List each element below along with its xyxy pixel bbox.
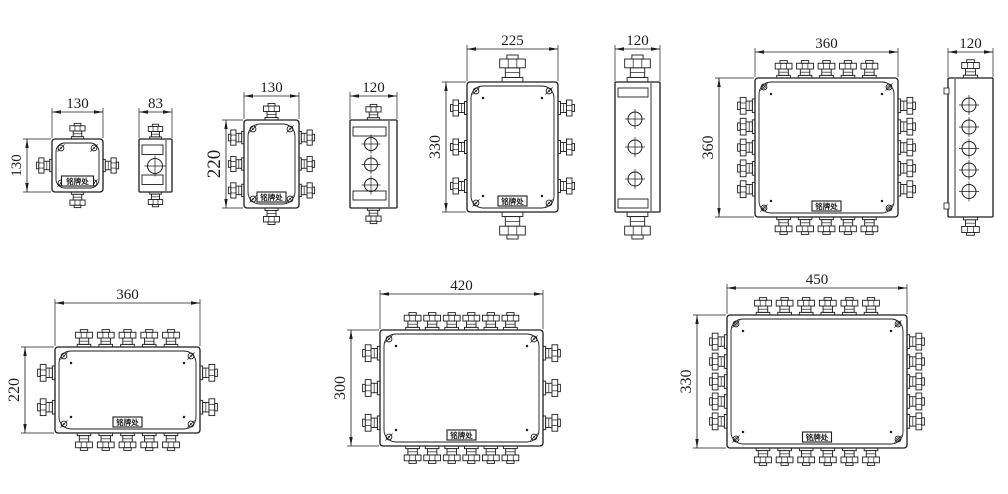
- dimension-label: 130: [260, 80, 283, 96]
- cable-gland-icon: [38, 399, 56, 416]
- cable-gland-icon: [841, 298, 858, 316]
- cable-gland-icon: [363, 345, 381, 362]
- cable-gland-icon: [542, 345, 560, 362]
- cable-gland-icon: [500, 211, 526, 239]
- cable-gland-icon: [557, 178, 575, 194]
- cable-gland-icon: [404, 313, 421, 331]
- dimension-label: 330: [678, 370, 695, 394]
- cable-gland-icon: [897, 181, 915, 198]
- nameplate-label: 铭牌处: [803, 432, 832, 442]
- cable-gland-icon: [710, 373, 728, 390]
- cable-gland-icon: [625, 211, 651, 239]
- box-420x300-front: 铭牌处420300: [332, 278, 560, 463]
- dimension-label: 360: [815, 36, 838, 52]
- cable-gland-icon: [863, 298, 880, 316]
- nameplate-label: 铭牌处: [113, 417, 142, 427]
- cable-gland-icon: [228, 183, 245, 198]
- cable-gland-icon: [443, 445, 460, 463]
- cable-gland-icon: [906, 413, 924, 430]
- cable-gland-icon: [163, 330, 180, 348]
- dimension-label: 330: [427, 135, 444, 159]
- cable-gland-icon: [625, 55, 651, 83]
- box-120-side-large-gland: 120: [615, 33, 660, 239]
- cable-gland-icon: [542, 414, 560, 431]
- cable-gland-icon: [102, 158, 119, 173]
- cable-gland-icon: [542, 380, 560, 397]
- cable-gland-icon: [298, 183, 315, 198]
- cable-gland-icon: [70, 123, 85, 140]
- cable-gland-icon: [962, 216, 980, 235]
- cable-gland-icon: [76, 432, 93, 450]
- cable-gland-icon: [97, 432, 114, 450]
- nameplate-label: 铭牌处: [498, 196, 527, 206]
- cable-gland-icon: [557, 139, 575, 155]
- cable-gland-icon: [819, 298, 836, 316]
- svg-text:铭牌处: 铭牌处: [116, 417, 139, 427]
- cable-gland-icon: [451, 178, 469, 194]
- nameplate-label: 铭牌处: [812, 201, 841, 211]
- dimension-label: 83: [148, 96, 163, 112]
- cable-gland-icon: [818, 216, 835, 234]
- cable-gland-icon: [738, 97, 756, 114]
- dimension-label: 130: [9, 154, 25, 177]
- cable-gland-icon: [298, 156, 315, 171]
- cable-gland-icon: [738, 181, 756, 198]
- cable-gland-icon: [738, 118, 756, 135]
- cable-gland-icon: [366, 104, 381, 121]
- dimension-label: 130: [66, 96, 89, 112]
- cable-gland-icon: [798, 447, 815, 465]
- dimension-220: 220: [6, 347, 54, 433]
- cable-gland-icon: [840, 61, 857, 79]
- cable-gland-icon: [738, 160, 756, 177]
- technical-drawing-svg: 铭牌处13013083铭牌处130220120铭牌处225330120铭牌处36…: [0, 0, 1008, 494]
- cable-gland-icon: [710, 413, 728, 430]
- cable-gland-icon: [710, 353, 728, 370]
- junction-box-drawing-sheet: 铭牌处13013083铭牌处130220120铭牌处225330120铭牌处36…: [0, 0, 1008, 494]
- cable-gland-icon: [840, 216, 857, 234]
- nameplate-label: 铭牌处: [447, 430, 476, 440]
- cable-gland-icon: [141, 432, 158, 450]
- cable-gland-icon: [264, 207, 280, 225]
- cable-gland-icon: [897, 118, 915, 135]
- cable-gland-icon: [710, 333, 728, 350]
- cable-gland-icon: [482, 313, 499, 331]
- dimension-label: 420: [450, 278, 473, 294]
- cable-gland-icon: [424, 313, 441, 331]
- cable-gland-icon: [463, 313, 480, 331]
- box-120-side-3bolt: 120: [350, 80, 397, 224]
- cable-gland-icon: [897, 160, 915, 177]
- cable-gland-icon: [463, 445, 480, 463]
- svg-text:铭牌处: 铭牌处: [815, 201, 838, 211]
- cable-gland-icon: [141, 330, 158, 348]
- box-360x360-front: 铭牌处360360: [700, 36, 915, 234]
- cable-gland-icon: [861, 61, 878, 79]
- cable-gland-icon: [863, 447, 880, 465]
- cable-gland-icon: [228, 130, 245, 145]
- cable-gland-icon: [775, 216, 792, 234]
- box-450x330-front: 铭牌处450330: [678, 272, 924, 465]
- cable-gland-icon: [818, 61, 835, 79]
- cable-gland-icon: [366, 207, 381, 224]
- box-225x330-front: 铭牌处225330: [427, 33, 575, 239]
- cable-gland-icon: [119, 432, 136, 450]
- cable-gland-icon: [148, 124, 162, 140]
- box-360x220-front: 铭牌处360220: [6, 287, 217, 450]
- cable-gland-icon: [738, 139, 756, 156]
- cable-gland-icon: [755, 447, 772, 465]
- cable-gland-icon: [500, 55, 526, 83]
- cable-gland-icon: [228, 156, 245, 171]
- cable-gland-icon: [451, 139, 469, 155]
- cable-gland-icon: [163, 432, 180, 450]
- cable-gland-icon: [298, 130, 315, 145]
- cable-gland-icon: [404, 445, 421, 463]
- svg-text:铭牌处: 铭牌处: [66, 176, 89, 186]
- svg-text:铭牌处: 铭牌处: [501, 196, 524, 206]
- cable-gland-icon: [424, 445, 441, 463]
- cable-gland-icon: [119, 330, 136, 348]
- cable-gland-icon: [897, 139, 915, 156]
- cable-gland-icon: [906, 373, 924, 390]
- cable-gland-icon: [502, 313, 519, 331]
- svg-text:铭牌处: 铭牌处: [450, 430, 473, 440]
- cable-gland-icon: [451, 100, 469, 116]
- dimension-label: 225: [501, 33, 524, 49]
- nameplate-label: 铭牌处: [257, 192, 286, 202]
- dimension-label: 120: [959, 36, 982, 52]
- cable-gland-icon: [906, 333, 924, 350]
- dimension-label: 120: [362, 80, 385, 96]
- dimension-label: 300: [332, 376, 349, 400]
- cable-gland-icon: [557, 100, 575, 116]
- box-130x220-front: 铭牌处130220: [204, 80, 315, 225]
- cable-gland-icon: [363, 380, 381, 397]
- cable-gland-icon: [906, 353, 924, 370]
- cable-gland-icon: [797, 61, 814, 79]
- cable-gland-icon: [443, 313, 460, 331]
- cable-gland-icon: [755, 298, 772, 316]
- cable-gland-icon: [199, 399, 217, 416]
- cable-gland-icon: [798, 298, 815, 316]
- cable-gland-icon: [148, 191, 162, 207]
- dimension-label: 450: [806, 272, 829, 288]
- cable-gland-icon: [776, 447, 793, 465]
- dimension-label: 360: [700, 136, 717, 160]
- cable-gland-icon: [199, 364, 217, 381]
- cable-gland-icon: [363, 414, 381, 431]
- cable-gland-icon: [962, 60, 980, 79]
- cable-gland-icon: [906, 393, 924, 410]
- cable-gland-icon: [861, 216, 878, 234]
- box-83-side: 83: [139, 96, 172, 207]
- cable-gland-icon: [710, 393, 728, 410]
- box-120-side-5bolt: 120: [944, 36, 993, 235]
- cable-gland-icon: [897, 97, 915, 114]
- cable-gland-icon: [775, 61, 792, 79]
- dimension-label: 120: [626, 33, 649, 49]
- dimension-label: 220: [6, 378, 23, 402]
- svg-text:铭牌处: 铭牌处: [260, 192, 283, 202]
- cable-gland-icon: [502, 445, 519, 463]
- cable-gland-icon: [482, 445, 499, 463]
- box-130x130-front: 铭牌处130130: [9, 96, 119, 208]
- cable-gland-icon: [97, 330, 114, 348]
- cable-gland-icon: [36, 158, 53, 173]
- cable-gland-icon: [38, 364, 56, 381]
- dimension-label: 360: [116, 287, 139, 303]
- cable-gland-icon: [76, 330, 93, 348]
- nameplate-label: 铭牌处: [62, 176, 94, 186]
- dimension-450: 450: [727, 272, 907, 314]
- cable-gland-icon: [264, 104, 280, 122]
- cable-gland-icon: [70, 191, 85, 208]
- cable-gland-icon: [841, 447, 858, 465]
- cable-gland-icon: [776, 298, 793, 316]
- cable-gland-icon: [797, 216, 814, 234]
- cable-gland-icon: [819, 447, 836, 465]
- svg-text:铭牌处: 铭牌处: [806, 432, 829, 442]
- dimension-label: 220: [204, 150, 225, 179]
